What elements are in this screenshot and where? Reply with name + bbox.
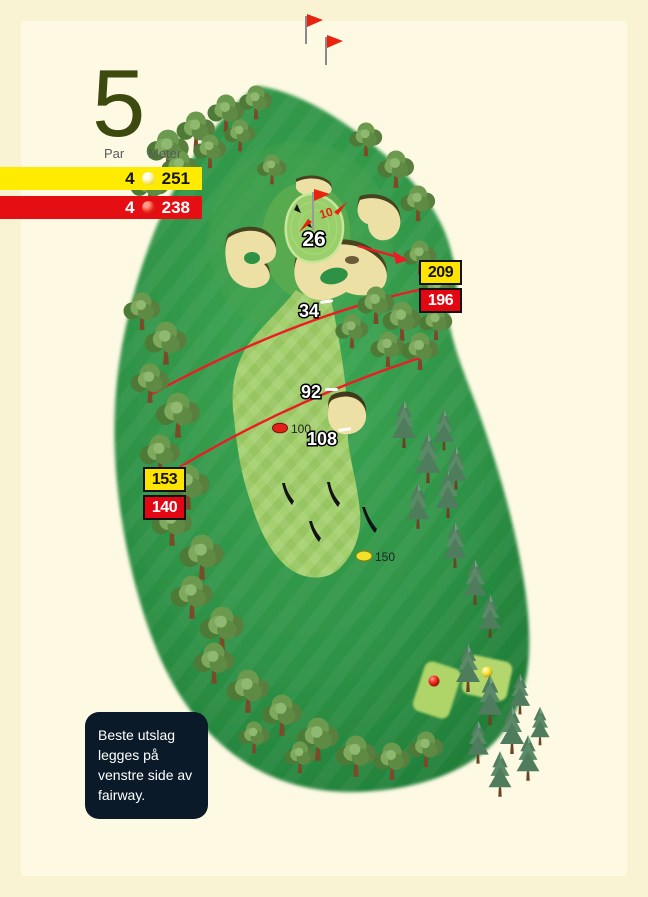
badge-209: 209	[419, 260, 462, 285]
yellow-tee-meters: 251	[162, 169, 190, 189]
yellow-tee-row: 4 251	[0, 167, 202, 190]
red-tee-par: 4	[125, 198, 134, 218]
top-flags	[306, 14, 343, 65]
tee-ball-yellow-icon	[482, 667, 493, 678]
flag-icon	[306, 14, 323, 44]
marker-34: 34	[299, 301, 319, 321]
red-tee-row: 4 238	[0, 196, 202, 219]
par-label: Par	[104, 146, 124, 161]
badge-140: 140	[143, 495, 186, 520]
hole-number: 5	[92, 56, 143, 152]
tee-ball-red-icon	[429, 676, 440, 687]
yellow-ball-icon	[142, 172, 155, 185]
yellow-tee-par: 4	[125, 169, 134, 189]
marker-108: 108	[307, 429, 337, 449]
red-ball-icon	[142, 201, 155, 214]
distance-badges-left: 153 140	[143, 467, 186, 520]
flag-icon	[326, 35, 343, 65]
marker-26: 26	[302, 228, 325, 251]
note-text: Beste utslag legges på venstre side av f…	[98, 727, 192, 803]
note-box: Beste utslag legges på venstre side av f…	[85, 712, 208, 819]
marker-92: 92	[301, 382, 321, 402]
meter-label: Meter	[148, 146, 181, 161]
bunker-left	[225, 227, 276, 288]
badge-196: 196	[419, 288, 462, 313]
distance-badges-right: 209 196	[419, 260, 462, 313]
ball-marker-150-label: 150	[375, 550, 395, 564]
red-tee-meters: 238	[162, 198, 190, 218]
badge-153: 153	[143, 467, 186, 492]
